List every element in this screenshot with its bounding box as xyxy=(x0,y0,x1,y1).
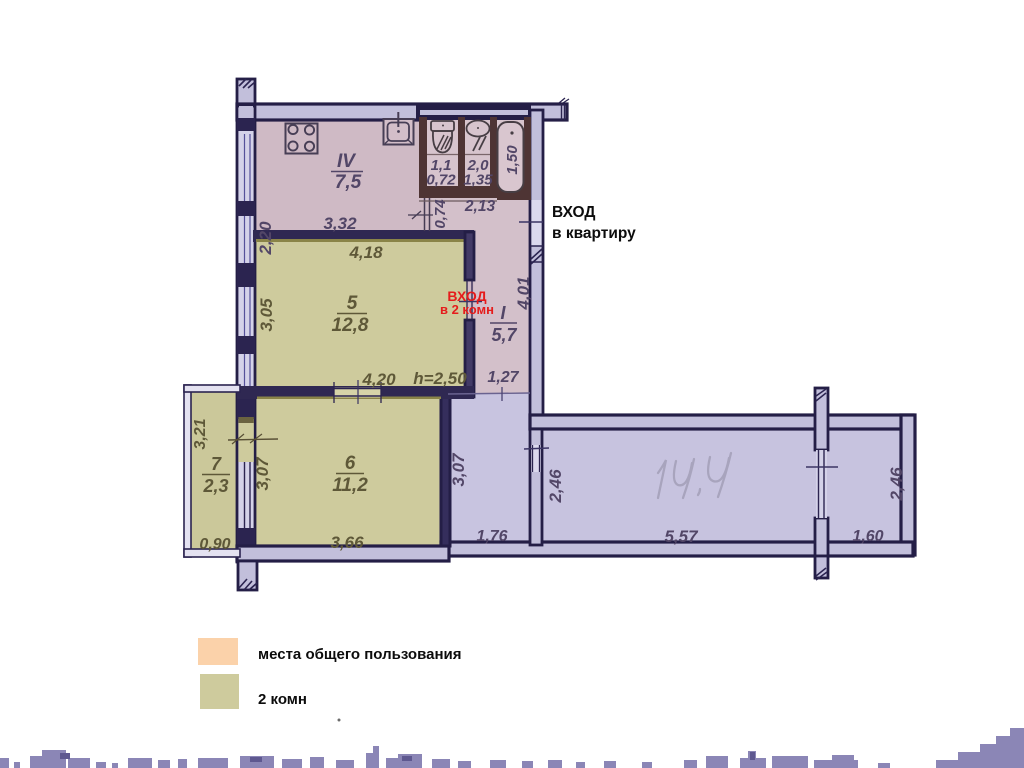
svg-text:1,35: 1,35 xyxy=(463,172,493,189)
svg-text:2,46: 2,46 xyxy=(546,469,565,504)
svg-text:6: 6 xyxy=(345,453,356,474)
svg-text:7: 7 xyxy=(211,454,222,474)
svg-text:3,32: 3,32 xyxy=(323,214,357,233)
svg-text:в 2 комн: в 2 комн xyxy=(440,302,494,317)
svg-text:IV: IV xyxy=(337,151,356,172)
svg-text:места общего пользования: места общего пользования xyxy=(258,646,462,663)
svg-text:3,07: 3,07 xyxy=(253,456,272,491)
svg-text:4,18: 4,18 xyxy=(348,243,383,262)
svg-text:0,74: 0,74 xyxy=(432,199,449,229)
svg-text:5,57: 5,57 xyxy=(664,527,699,546)
svg-text:11,2: 11,2 xyxy=(332,475,368,496)
svg-text:2,46: 2,46 xyxy=(887,467,906,502)
svg-text:1,50: 1,50 xyxy=(504,145,521,175)
svg-text:в квартиру: в квартиру xyxy=(552,225,636,242)
svg-text:7,5: 7,5 xyxy=(335,172,362,193)
svg-text:3,05: 3,05 xyxy=(257,298,276,332)
svg-text:1,27: 1,27 xyxy=(487,369,519,386)
svg-text:2 комн: 2 комн xyxy=(258,691,307,708)
svg-text:2,3: 2,3 xyxy=(202,476,228,496)
svg-text:3,21: 3,21 xyxy=(192,418,209,449)
svg-text:h=2,50: h=2,50 xyxy=(413,369,467,388)
svg-text:0,90: 0,90 xyxy=(199,536,230,553)
svg-text:0,72: 0,72 xyxy=(426,172,456,189)
svg-text:5: 5 xyxy=(347,293,358,314)
svg-text:3,66: 3,66 xyxy=(330,533,364,552)
svg-text:1,60: 1,60 xyxy=(852,528,883,545)
svg-text:4,01: 4,01 xyxy=(514,276,533,310)
svg-text:3,07: 3,07 xyxy=(449,452,468,487)
svg-text:5,7: 5,7 xyxy=(491,325,517,345)
svg-text:12,8: 12,8 xyxy=(332,315,369,336)
svg-text:1,76: 1,76 xyxy=(476,528,507,545)
svg-text:ВХОД: ВХОД xyxy=(552,204,595,221)
svg-text:4,20: 4,20 xyxy=(361,370,396,389)
svg-text:2,20: 2,20 xyxy=(256,221,275,256)
svg-text:2,13: 2,13 xyxy=(464,198,496,215)
